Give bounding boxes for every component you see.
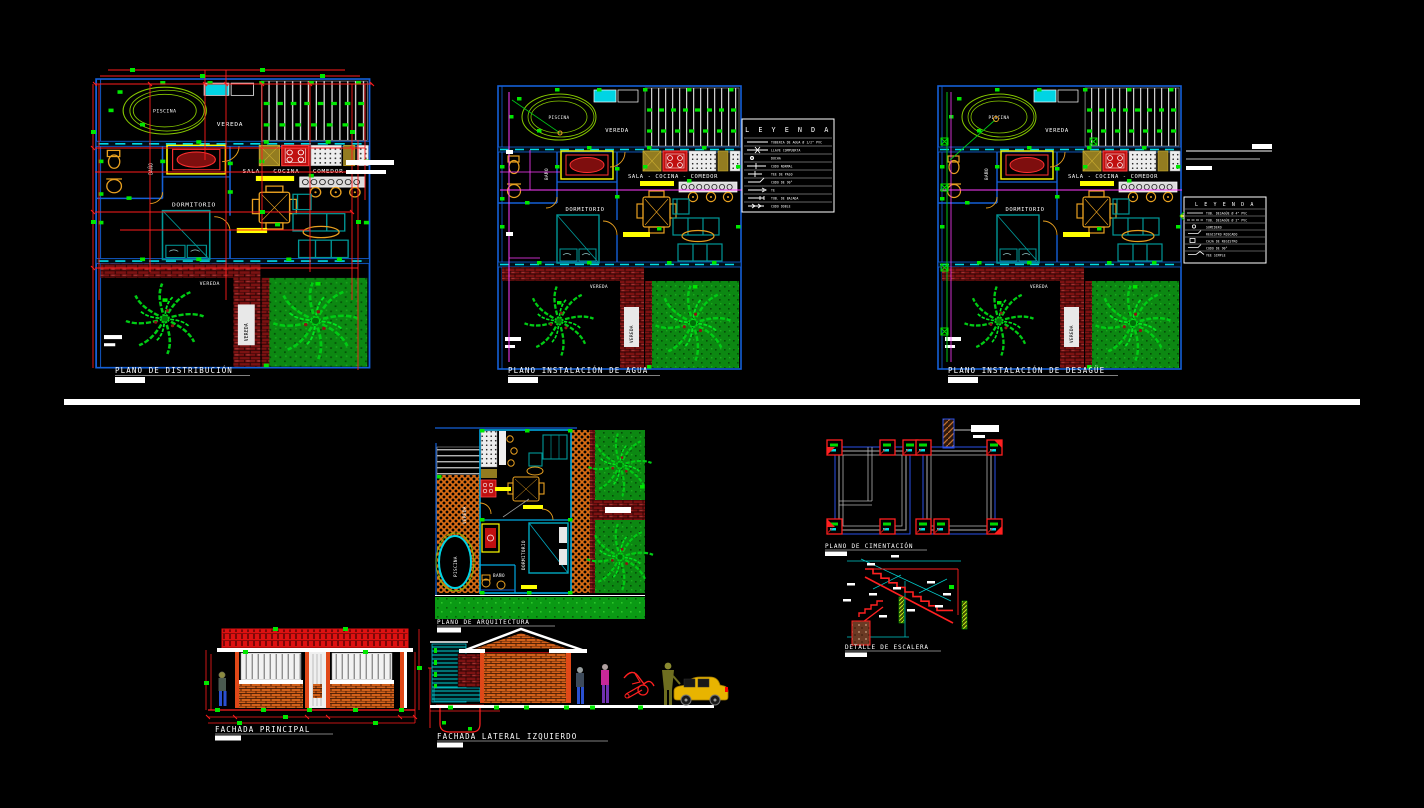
window[interactable] [241,653,301,680]
title-cimentacion: PLANO DE CIMENTACIÓN [825,543,913,550]
washer[interactable] [485,528,496,548]
leyenda-row: CAJA DE REGISTRO [1206,239,1237,243]
leyenda-row: SUMIDERO [1206,225,1222,229]
elevation-principal[interactable]: FACHADA PRINCIPAL [204,627,422,741]
grass-strip [435,597,645,619]
leyenda-row: YEE SIMPLE [1206,253,1226,257]
hatch-strip [899,597,904,623]
stair-footing [852,621,870,645]
plan-desague[interactable]: L E Y E N D A TUB. DESAGÜE Ø 4" PVC TUB.… [938,86,1272,383]
title-underline-block [508,377,538,383]
plan3-right-dims [1186,144,1272,170]
brick-block [458,654,480,687]
leyenda-row: TUBERIA DE AGUA Ø 1/2" PVC [771,139,822,144]
title-fachada-lateral: FACHADA LATERAL IZQUIERDO [437,732,577,741]
title-underline-block [437,743,463,748]
title-fachada-principal: FACHADA PRINCIPAL [215,725,310,734]
leyenda-row: REGISTRO ROSCADO [1206,232,1237,236]
detail-escalera[interactable]: DETALLE DE ESCALERA [843,555,967,657]
plan-cimentacion[interactable]: PLANO DE CIMENTACIÓN [825,419,1002,556]
side-wall [484,653,566,703]
leyenda-row: CODO DOBLE [771,204,791,208]
title-underline-block [825,552,847,557]
title-distribucion: PLANO DE DISTRIBUCIÓN [115,366,233,375]
leyenda-desague: L E Y E N D A TUB. DESAGÜE Ø 4" PVC TUB.… [1180,197,1266,263]
label-vereda: VEREDA [462,506,468,524]
column-tag [971,425,999,432]
brick-wall [330,684,394,708]
grip[interactable] [949,585,954,589]
plan-arquitectura[interactable]: PISCINA VEREDA DORMITORIO BAÑO [435,428,653,633]
elevation-lateral[interactable]: FACHADA LATERAL IZQUIERDO [428,629,728,748]
leyenda-row: CODO DE 90° [1206,246,1228,250]
window[interactable] [332,653,392,680]
note-bar [346,170,386,174]
leyenda-desague-title: L E Y E N D A [1195,202,1255,208]
title-arquitectura: PLANO DE ARQUITECTURA [437,619,530,626]
pit-section [440,705,480,732]
leyenda-row: TUB. DE BAJADA [771,196,799,200]
title-desague: PLANO INSTALACIÓN DE DESAGÜE [948,366,1105,375]
title-agua: PLANO INSTALACIÓN DE AGUA [508,366,648,375]
roof [222,629,408,648]
leyenda-row: TE [771,188,775,192]
title-underline-block [845,653,867,658]
title-underline-block [437,628,461,633]
pilaster [309,652,326,708]
leyenda-row: TUB. DESAGÜE Ø 4" PVC [1206,210,1247,215]
leyenda-row: TUB. DESAGÜE Ø 2" PVC [1206,217,1247,222]
leyenda-row: TEE DE PASO [771,172,793,176]
label-piscina: PISCINA [453,556,459,577]
plan-agua[interactable]: L E Y E N D A TUBERIA DE AGUA Ø 1/2" PVC… [498,86,834,383]
sheet-divider [64,399,1360,405]
column-section [943,419,954,448]
brick-wall [239,684,303,708]
label-dormitorio: DORMITORIO [521,540,527,570]
person-magenta [601,664,609,703]
vereda-hatch-right [571,430,590,593]
title-underline-block [948,377,978,383]
cad-sheet: PISCINA VEREDA BAÑO [0,0,1424,808]
title-underline-block [215,736,241,741]
label-bano: BAÑO [493,572,505,579]
person-blue [576,667,584,704]
leyenda-row: CODO NORMAL [771,164,793,168]
note-bar [346,160,394,165]
title-underline-block [115,377,145,383]
leyenda-agua: L E Y E N D A TUBERIA DE AGUA Ø 1/2" PVC… [742,119,834,212]
stove[interactable] [481,480,496,497]
foundation-left [835,447,910,534]
cad-drawing: PISCINA VEREDA BAÑO [0,0,1424,808]
leyenda-row: LLAVE COMPUERTA [771,148,800,152]
ground-line [430,705,714,708]
person-figure [219,672,227,706]
car [674,677,728,705]
leyenda-row: DUCHA [771,156,781,160]
plan-distribucion[interactable]: PLANO DE DISTRIBUCIÓN [91,68,394,383]
figure-red-sculpture [624,672,654,698]
hatch-strip [962,601,967,629]
title-escalera: DETALLE DE ESCALERA [845,644,929,651]
leyenda-agua-title: L E Y E N D A [745,126,831,134]
leyenda-row: CODO DE 90° [771,180,793,184]
